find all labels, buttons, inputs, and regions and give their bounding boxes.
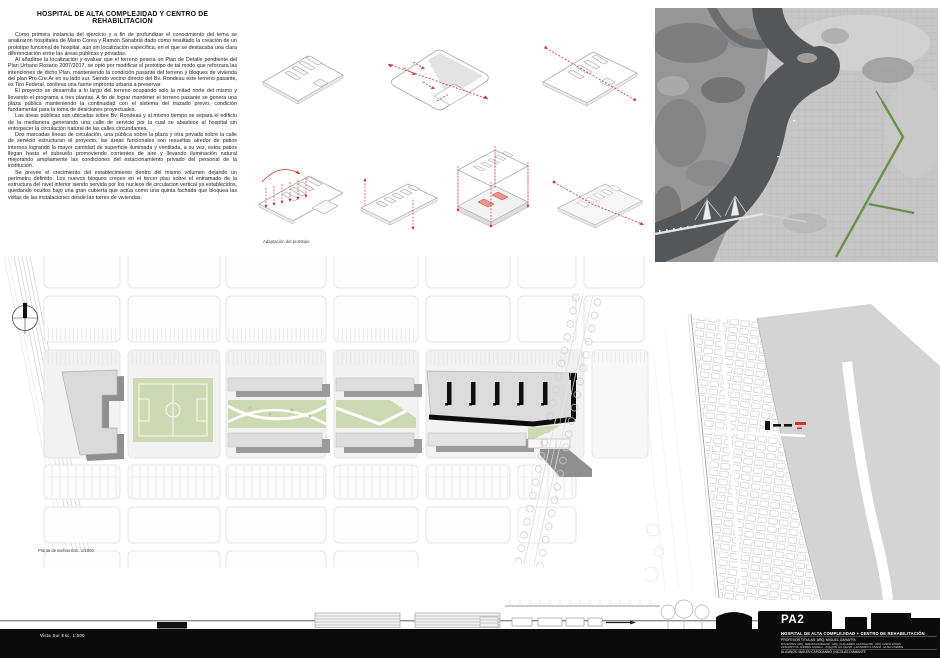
presentation-board: HOSPITAL DE ALTA COMPLEJIDAD Y CENTRO DE… (0, 0, 940, 658)
axon-diagram-extruded-volume (450, 140, 535, 232)
memoria-paragraph: Se prevee el crecimiento del establecimi… (8, 170, 237, 201)
memoria-paragraph: Al añadirse la localización y evaluar qu… (8, 57, 237, 88)
axon-diagram-comb-axis (538, 42, 643, 107)
title-block-project: HOSPITAL DE ALTA COMPLEJIDAD + CENTRO DE… (781, 631, 925, 636)
elevation-low-building (157, 622, 187, 629)
axon-diagram-rounded-slab-flows (382, 38, 497, 118)
axon-diagram-slab-bent-axis (550, 174, 648, 232)
memoria-text-block: HOSPITAL DE ALTA COMPLEJIDAD Y CENTRO DE… (8, 11, 237, 201)
service-bars-and-parks (228, 378, 422, 453)
memoria-paragraph: Como primera instancia del ejercicio y a… (8, 32, 237, 57)
skyline-silhouettes (716, 611, 940, 630)
elevation-hospital-roof (505, 601, 660, 627)
elevation-louver-bars (315, 613, 500, 628)
axon-diagram-slotted-bar (356, 172, 442, 232)
prototype-diagrams (240, 28, 652, 240)
site-plan-caption: Planta de techos Esc. 1/1000 (38, 548, 94, 553)
elevation-trees (661, 600, 709, 629)
city-map (645, 290, 940, 600)
axon-diagram-comb-slab (258, 45, 348, 107)
title-block-code: PA2 (781, 614, 804, 626)
memoria-paragraph: Dos marcadas líneas de circulación, una … (8, 132, 237, 170)
site-plan (0, 256, 660, 568)
axon-diagram-comb-drop-arrows (254, 160, 348, 232)
soccer-field (133, 378, 213, 442)
memoria-paragraph: El proyecto se desarrolla a lo largo del… (8, 88, 237, 113)
aerial-photo (655, 8, 938, 262)
memoria-paragraph: Las áreas públicas son ubicadas sobre Bv… (8, 113, 237, 132)
elevation-caption: Vista Sur Esc. 1:500 (40, 633, 85, 638)
prototype-diagrams-caption: Adaptación del prototipo (263, 239, 309, 244)
project-title: HOSPITAL DE ALTA COMPLEJIDAD Y CENTRO DE… (8, 11, 237, 25)
north-arrow-icon (13, 302, 38, 334)
title-block-professor: PROFESOR TITULAR: ARQ. MIGUEL GARAFFA (781, 638, 856, 642)
title-block-students: ALUMNOS: MAILEN CAPODANNO | NICOLAS DIAM… (781, 650, 866, 654)
